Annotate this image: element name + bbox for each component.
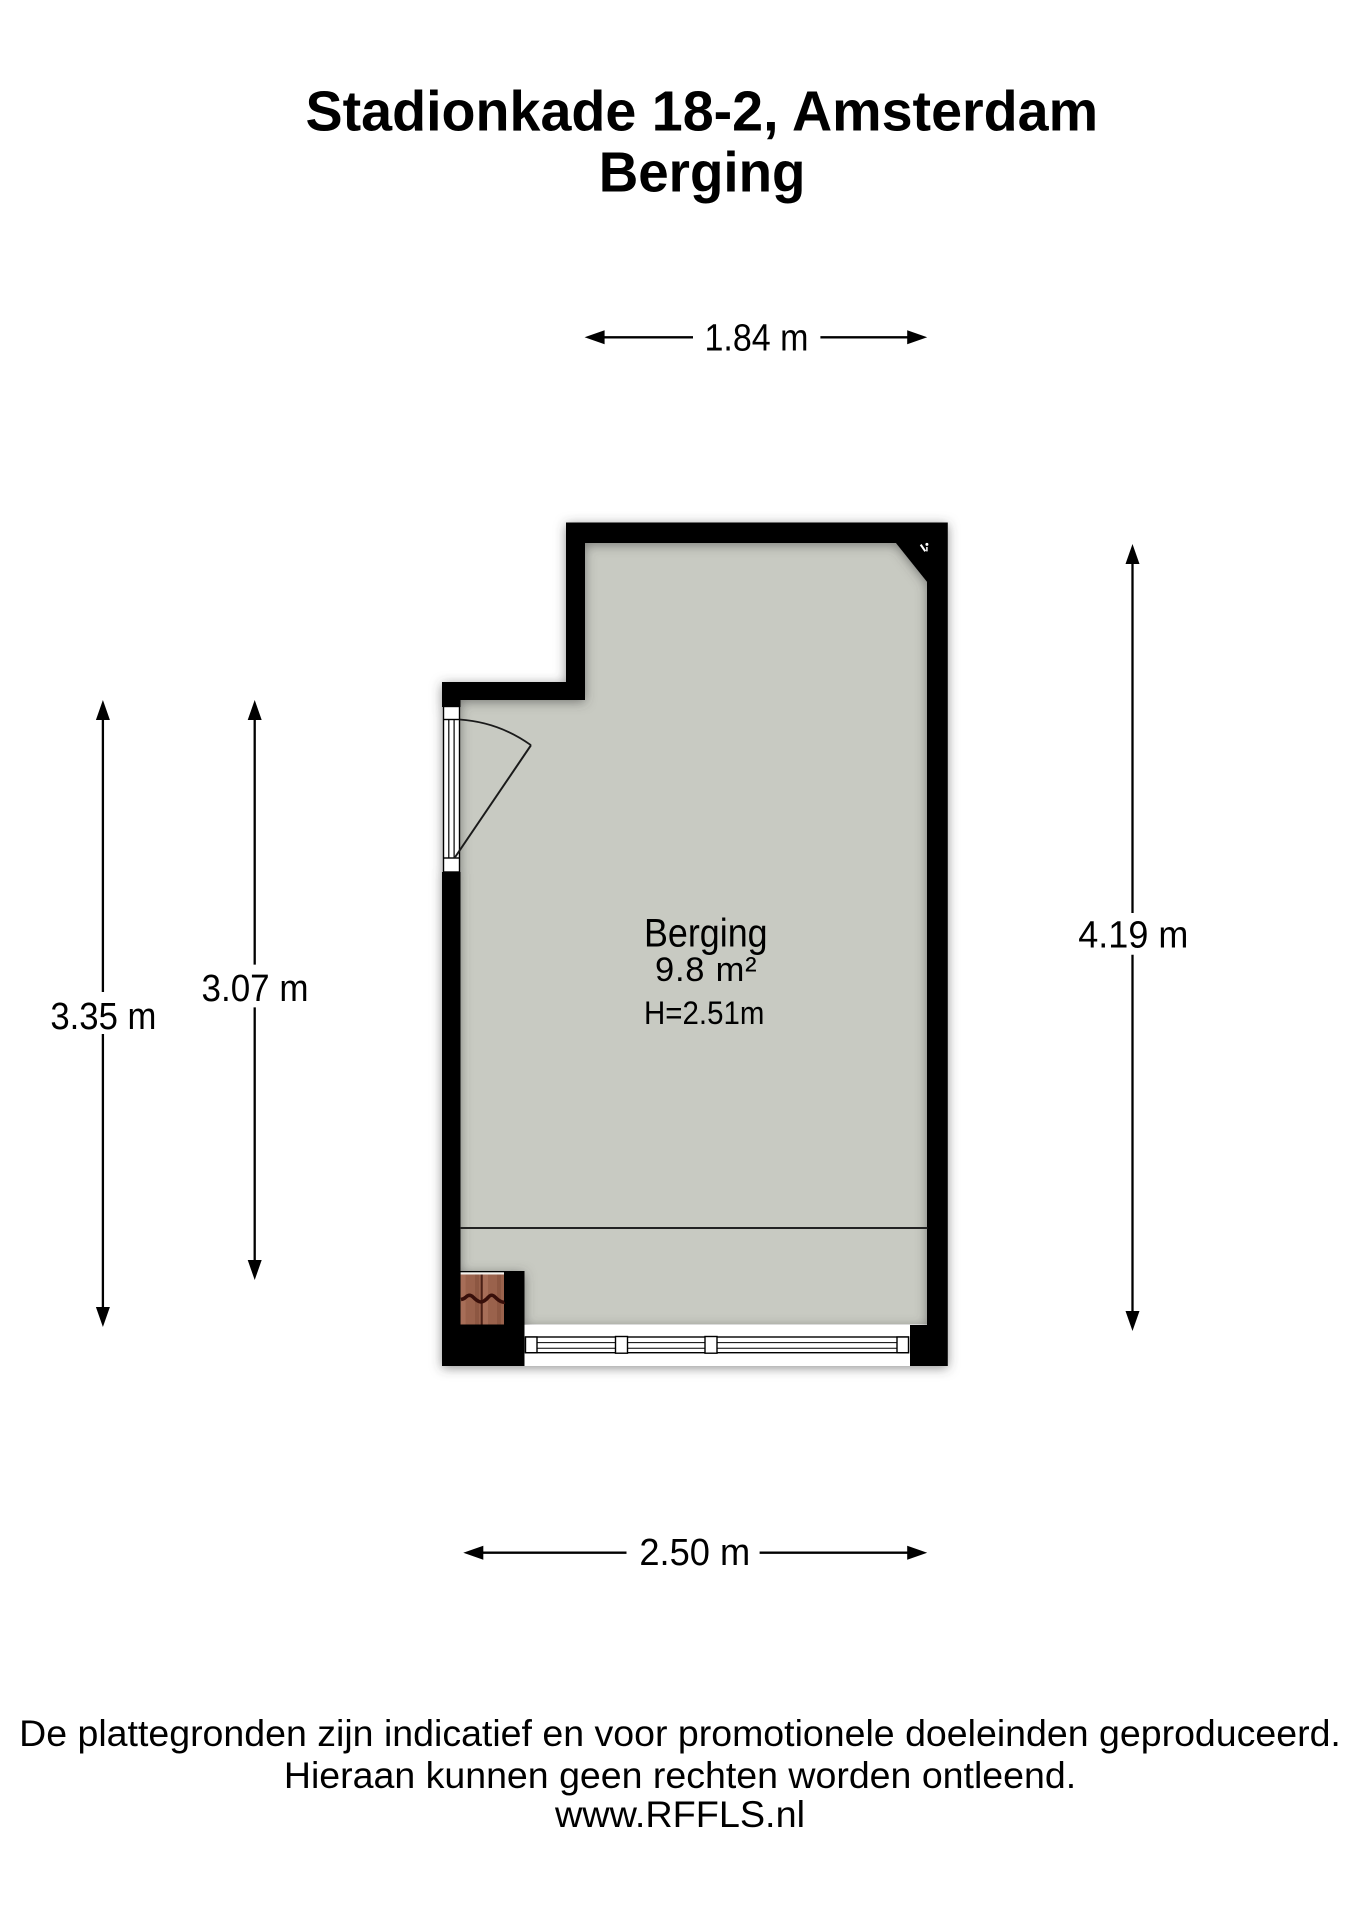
svg-text:4.19 m: 4.19 m (1078, 915, 1188, 957)
svg-text:3.07 m: 3.07 m (202, 968, 309, 1010)
svg-text:De plattegronden zijn indicati: De plattegronden zijn indicatief en voor… (19, 1712, 1341, 1754)
svg-text:H=2.51m: H=2.51m (644, 995, 764, 1031)
svg-text:3.35 m: 3.35 m (50, 996, 156, 1038)
svg-text:www.RFFLS.nl: www.RFFLS.nl (554, 1793, 805, 1835)
svg-text:Berging: Berging (599, 141, 806, 204)
svg-text:Berging: Berging (644, 911, 768, 955)
svg-text:Stadionkade 18-2, Amsterdam: Stadionkade 18-2, Amsterdam (306, 80, 1099, 143)
svg-text:2.50 m: 2.50 m (639, 1532, 750, 1574)
svg-text:1.84 m: 1.84 m (705, 318, 809, 360)
svg-text:Hieraan kunnen geen rechten wo: Hieraan kunnen geen rechten worden ontle… (284, 1754, 1076, 1796)
svg-text:9.8 m²: 9.8 m² (655, 951, 757, 989)
